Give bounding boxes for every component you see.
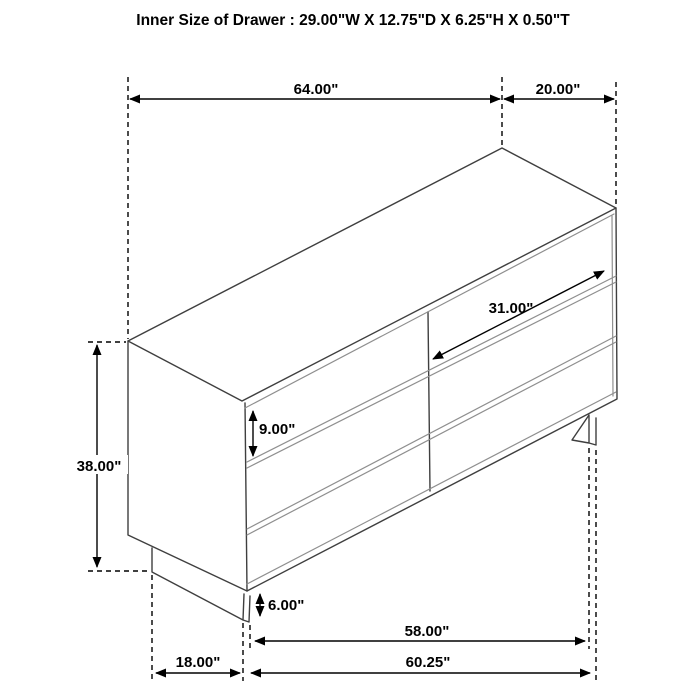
diagram-canvas: Inner Size of Drawer : 29.00"W X 12.75"D…: [0, 0, 700, 700]
dim-label-overall-height: 38.00": [77, 458, 122, 475]
dresser-front-face: [245, 208, 617, 591]
extension-lines: [88, 77, 616, 681]
dim-label-drawer-front-height: 9.00": [259, 421, 295, 438]
rail-row2-lower: [247, 342, 616, 535]
drawer-rails: [245, 214, 616, 584]
dim-label-top-depth: 20.00": [536, 81, 581, 98]
diagram-title: Inner Size of Drawer : 29.00"W X 12.75"D…: [136, 12, 570, 29]
right-edge-inner-line: [612, 216, 613, 396]
dresser-top-face: [128, 148, 616, 401]
dim-label-base-width: 60.25": [406, 654, 451, 671]
base-right-leg: [572, 415, 596, 445]
dresser-dimension-diagram: Inner Size of Drawer : 29.00"W X 12.75"D…: [0, 0, 700, 700]
dimension-lines: [97, 99, 614, 673]
dresser-side-panel: [128, 341, 247, 591]
dim-label-leg-span: 58.00": [405, 623, 450, 640]
dim-label-drawer-front-width: 31.00": [489, 300, 534, 317]
rail-row2-upper: [247, 336, 616, 529]
bottom-rail-line: [247, 392, 616, 584]
dim-label-base-height: 6.00": [268, 597, 304, 614]
drawer-center-stile: [428, 312, 430, 491]
dresser-outline: [128, 148, 617, 622]
dim-label-base-depth: 18.00": [176, 654, 221, 671]
dim-label-top-width: 64.00": [294, 81, 339, 98]
